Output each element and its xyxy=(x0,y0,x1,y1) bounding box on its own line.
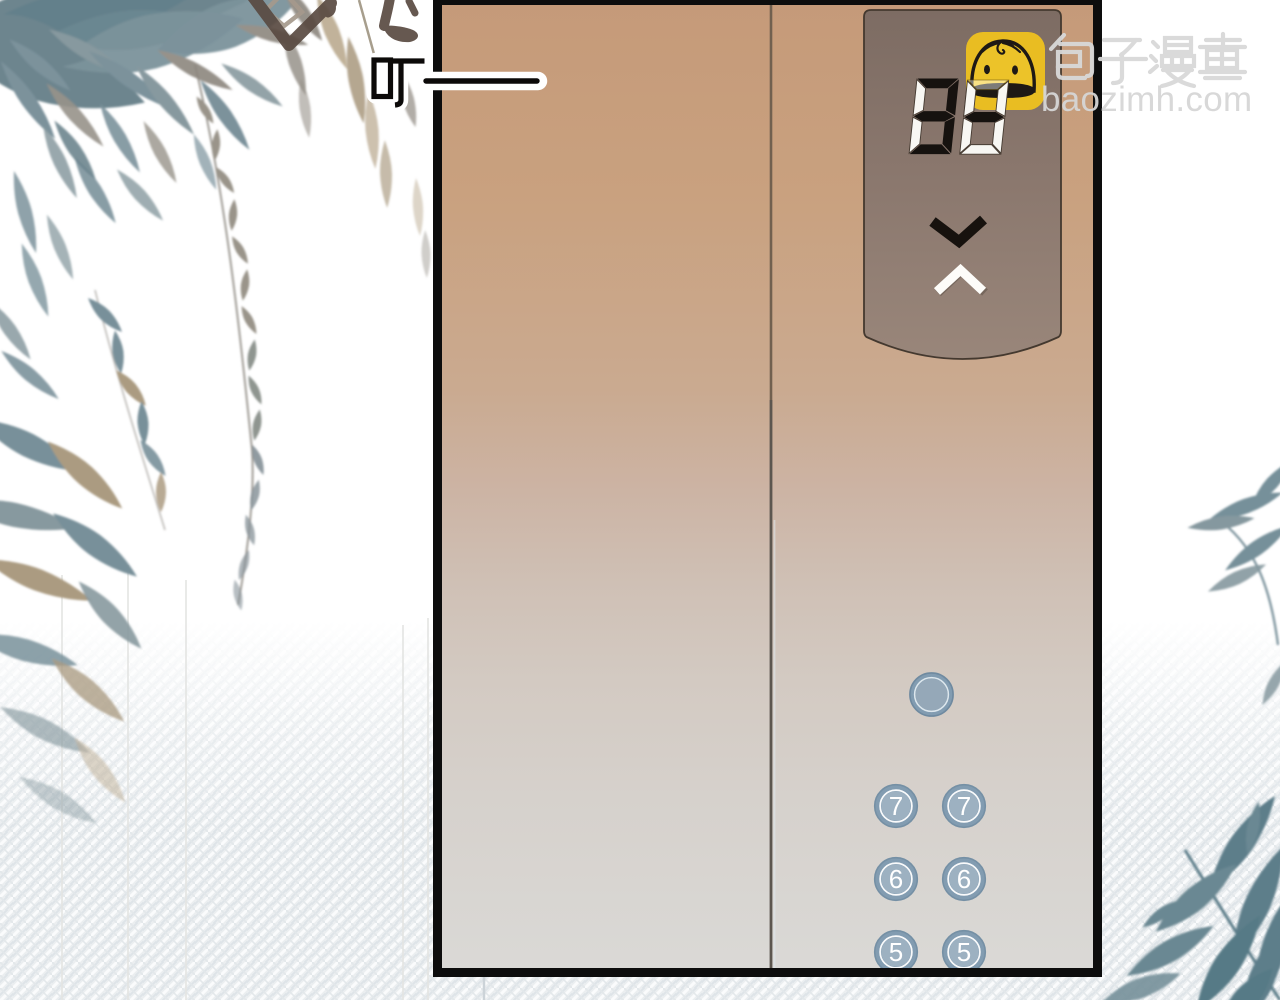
svg-text:5: 5 xyxy=(889,937,903,967)
svg-text:7: 7 xyxy=(889,791,903,821)
svg-text:5: 5 xyxy=(957,937,971,967)
svg-text:6: 6 xyxy=(957,864,971,894)
svg-text:7: 7 xyxy=(957,791,971,821)
svg-text:6: 6 xyxy=(889,864,903,894)
svg-text:baozimh.com: baozimh.com xyxy=(1041,80,1252,119)
